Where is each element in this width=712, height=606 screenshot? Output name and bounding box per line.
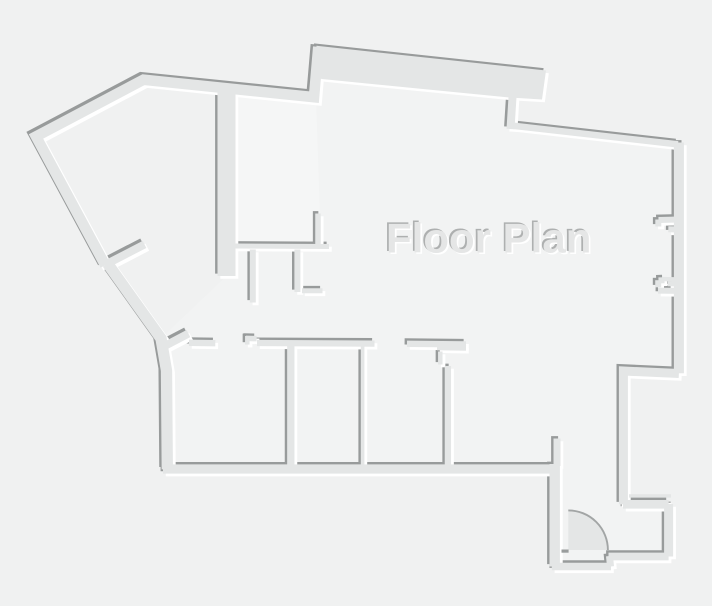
- svg-text:Floor Plan: Floor Plan: [386, 215, 591, 262]
